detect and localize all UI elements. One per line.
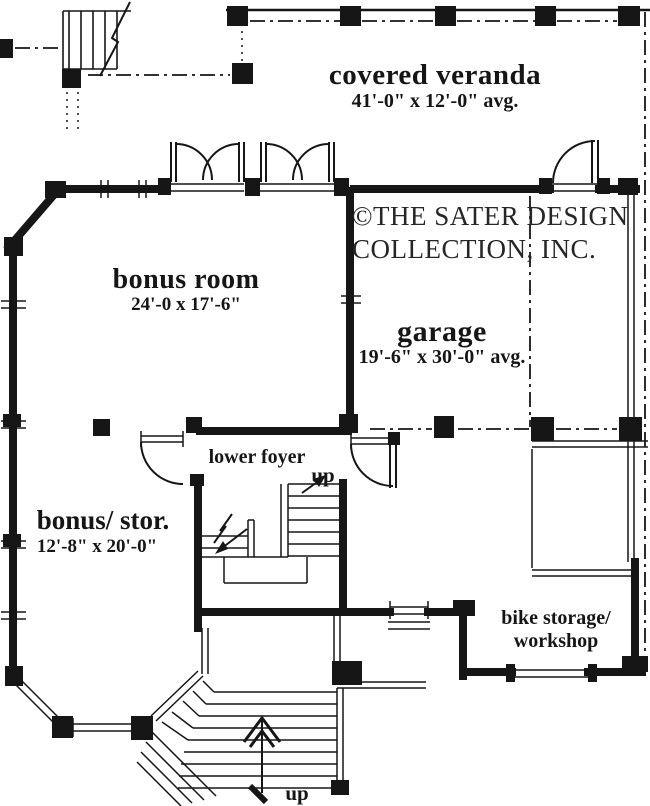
interior-post	[93, 419, 110, 436]
bike-storage-label-line2: workshop	[514, 631, 598, 651]
floor-plan: covered veranda 41'-0" x 12'-0" avg. ©TH…	[0, 0, 650, 806]
door-arc	[203, 144, 239, 180]
veranda-post	[232, 63, 253, 84]
copyright-line1: ©THE SATER DESIGN	[352, 203, 629, 230]
window-lines	[13, 184, 648, 737]
garage-post	[531, 417, 554, 441]
door-arc	[293, 144, 329, 180]
veranda-post	[618, 6, 640, 26]
veranda-post	[340, 6, 361, 26]
door-arc	[141, 442, 183, 484]
post	[332, 661, 362, 685]
lower-foyer-label: lower foyer	[209, 447, 306, 467]
door-arc	[351, 444, 393, 486]
interior-stairs	[198, 475, 341, 583]
veranda-post	[227, 6, 248, 26]
veranda-post	[435, 6, 456, 26]
garage-post	[619, 417, 642, 441]
up-label-exterior: up	[285, 783, 308, 804]
veranda-edge	[0, 6, 650, 660]
veranda-post	[535, 6, 556, 26]
window-post	[506, 664, 515, 682]
exterior-stairs	[137, 661, 362, 806]
veranda-label: covered veranda	[329, 61, 541, 90]
floorplan-drawing	[0, 0, 650, 806]
door-arc	[553, 141, 595, 183]
veranda-post	[0, 39, 13, 58]
break-line	[214, 514, 232, 543]
bonus-room-label: bonus room	[113, 266, 260, 294]
garage-dimensions: 19'-6" x 30'-0" avg.	[359, 347, 526, 367]
bonus-room-dimensions: 24'-0 x 17'-6"	[131, 295, 241, 314]
post	[331, 780, 349, 795]
garage-label: garage	[397, 317, 487, 347]
bike-storage-label-line1: bike storage/	[501, 608, 610, 628]
copyright-line2: COLLECTION, INC.	[352, 236, 596, 263]
post	[62, 69, 81, 88]
bay-window	[13, 682, 58, 727]
window-post	[588, 664, 597, 682]
garage-post	[434, 416, 454, 438]
veranda-dimensions: 41'-0" x 12'-0" avg.	[352, 91, 519, 111]
up-label-interior: up	[311, 465, 334, 486]
bonus-storage-label: bonus/ stor.	[37, 507, 170, 534]
bonus-storage-dimensions: 12'-8" x 20'-0"	[37, 537, 157, 556]
